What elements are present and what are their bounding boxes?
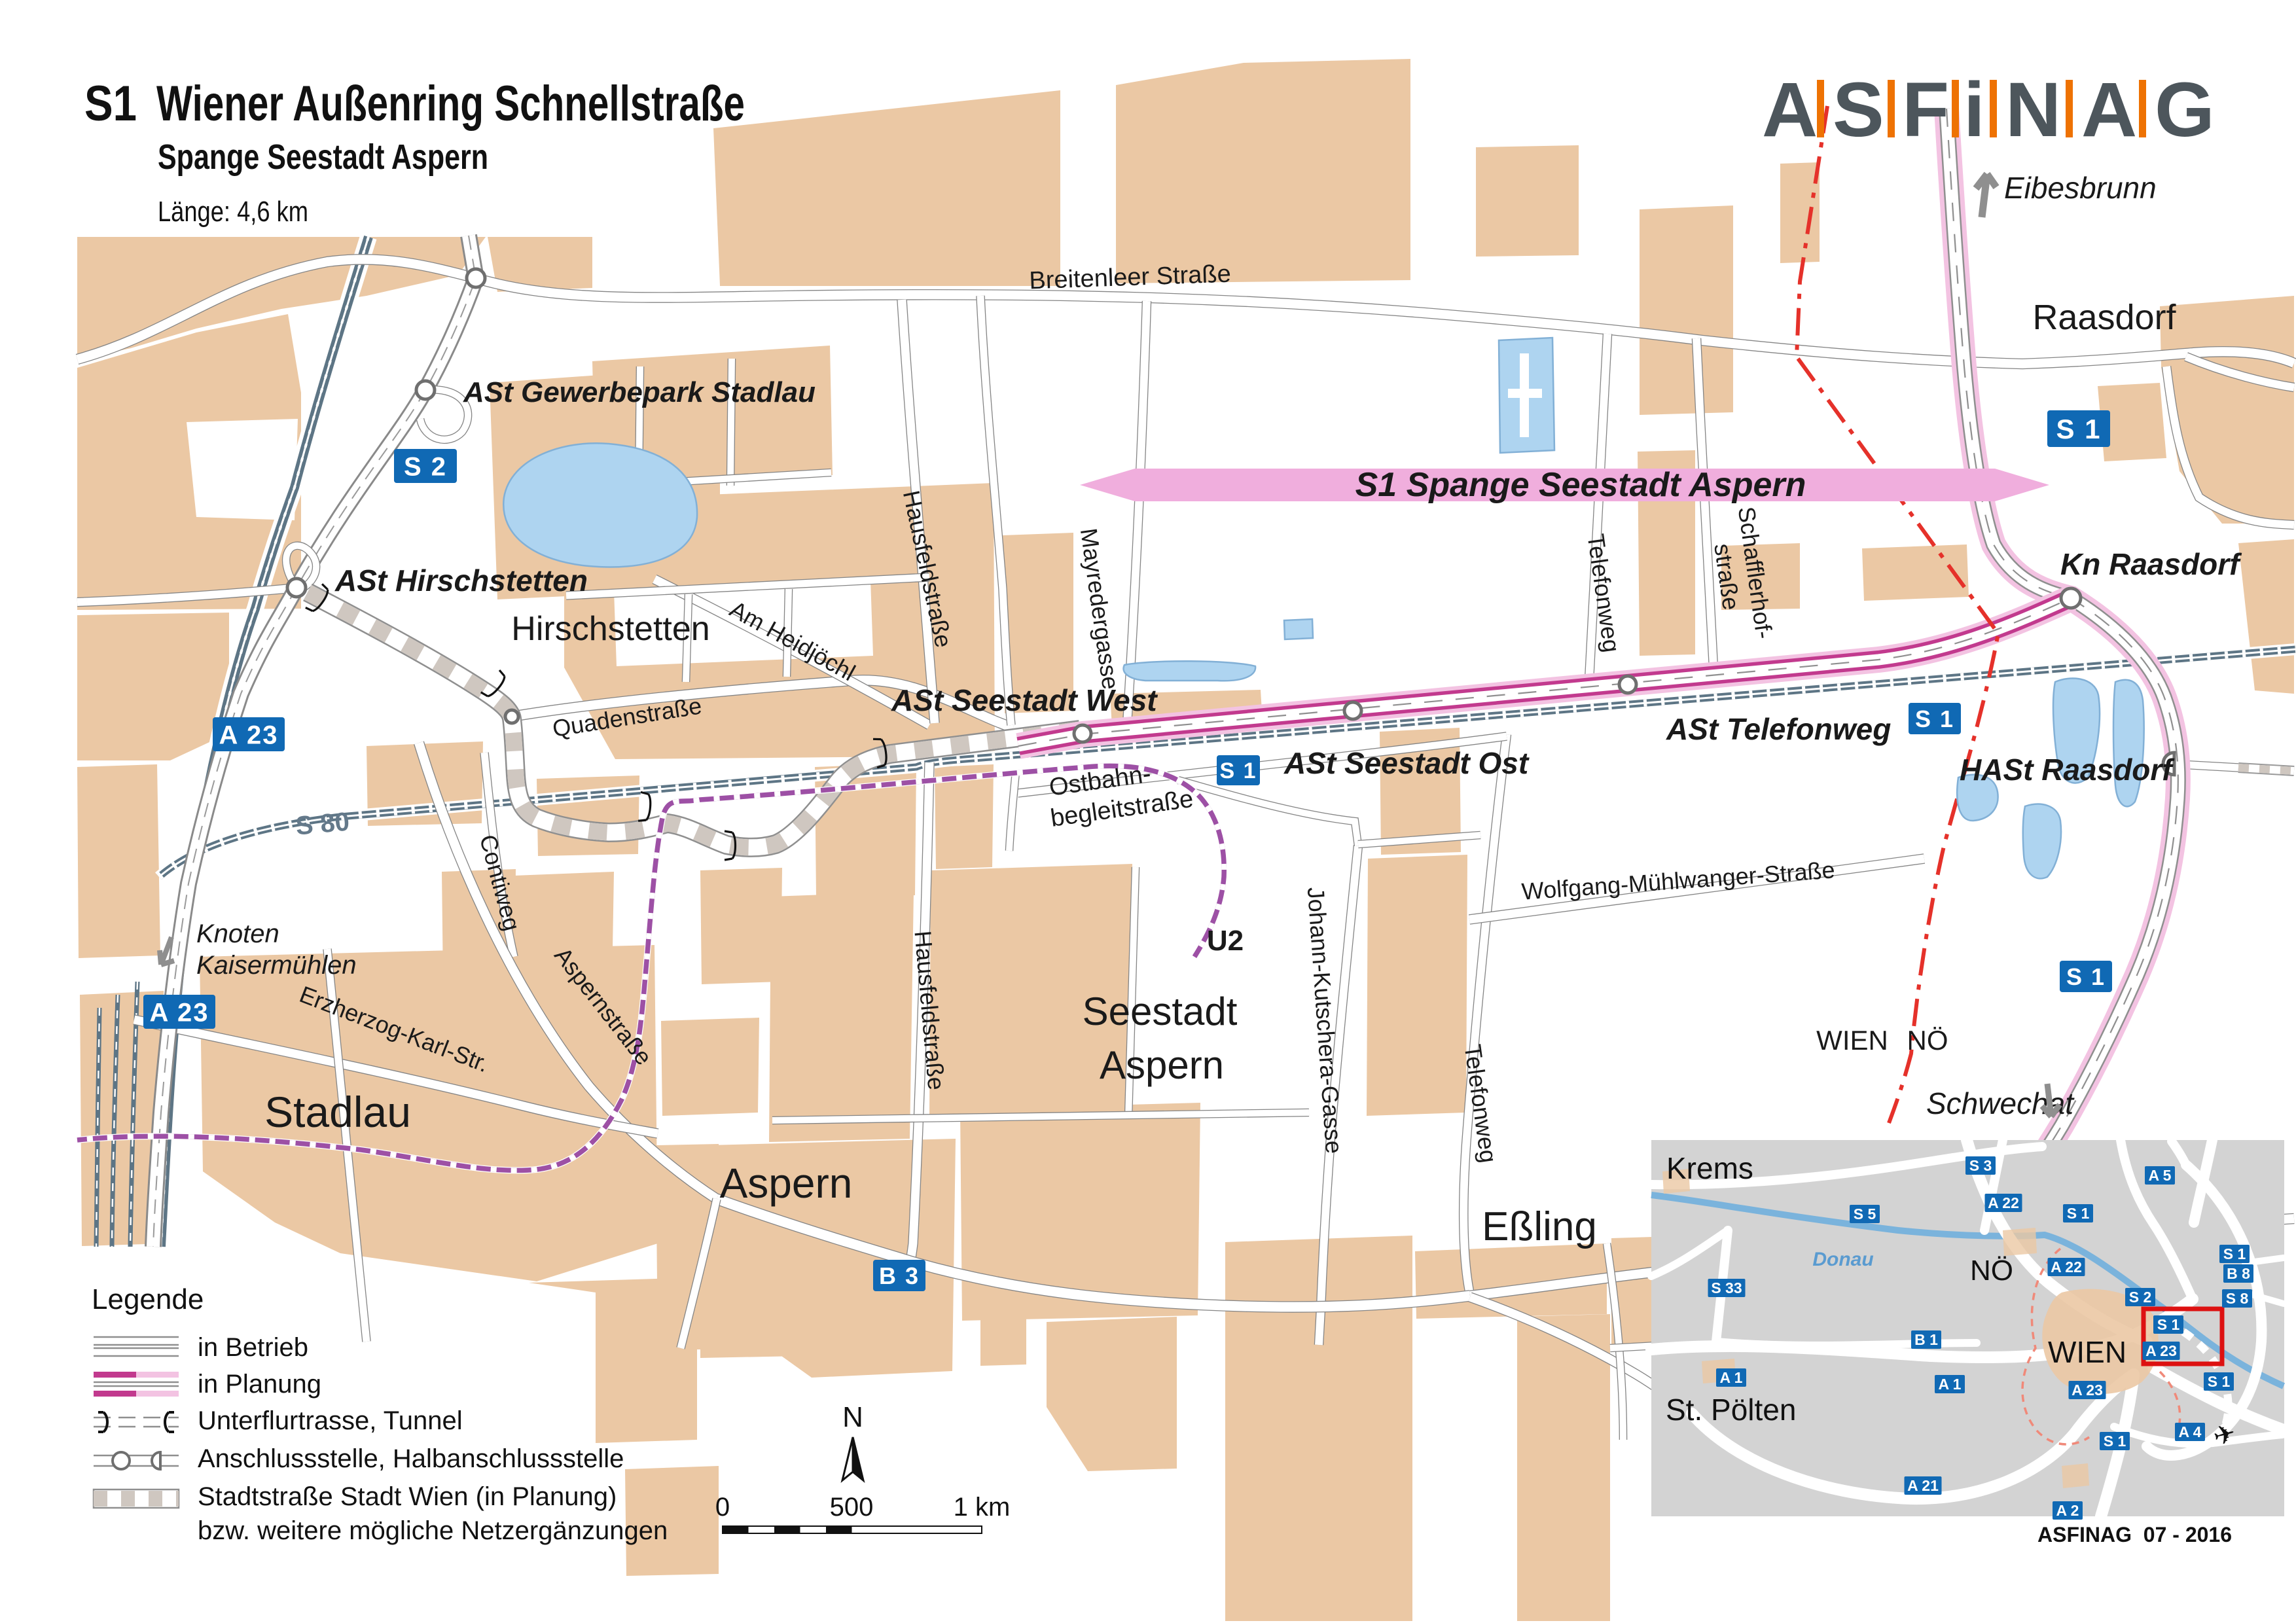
svg-text:WIEN: WIEN — [1816, 1025, 1888, 1056]
svg-text:N: N — [2005, 67, 2061, 153]
svg-text:S 3: S 3 — [1969, 1157, 1992, 1174]
svg-text:St. Pölten: St. Pölten — [1666, 1393, 1796, 1427]
svg-text:NÖ: NÖ — [1907, 1025, 1948, 1056]
svg-text:U2: U2 — [1207, 925, 1244, 957]
svg-text:Aspern: Aspern — [1100, 1043, 1224, 1087]
svg-text:Wiener Außenring Schnellstraße: Wiener Außenring Schnellstraße — [156, 76, 745, 132]
svg-text:B 1: B 1 — [1914, 1331, 1938, 1348]
svg-text:G: G — [2155, 67, 2215, 153]
svg-text:S 2: S 2 — [404, 452, 447, 481]
svg-text:S 1: S 1 — [2104, 1433, 2126, 1450]
svg-text:in Planung: in Planung — [198, 1370, 321, 1399]
svg-text:Eßling: Eßling — [1482, 1204, 1597, 1249]
svg-text:A 23: A 23 — [2072, 1382, 2103, 1399]
svg-text:S: S — [1833, 67, 1884, 153]
svg-text:HASt Raasdorf: HASt Raasdorf — [1960, 753, 2175, 787]
svg-text:B 8: B 8 — [2227, 1265, 2250, 1282]
svg-text:A 1: A 1 — [1720, 1369, 1743, 1386]
svg-text:in Betrieb: in Betrieb — [198, 1333, 308, 1362]
svg-text:NÖ: NÖ — [1970, 1255, 2013, 1287]
svg-text:A 2: A 2 — [2056, 1502, 2079, 1519]
svg-text:S 33: S 33 — [1711, 1279, 1742, 1296]
svg-text:Kn Raasdorf: Kn Raasdorf — [2060, 547, 2242, 581]
svg-text:S1: S1 — [84, 76, 137, 132]
svg-text:A: A — [2081, 67, 2137, 153]
svg-text:Raasdorf: Raasdorf — [2032, 298, 2176, 337]
svg-text:Unterflurtrasse, Tunnel: Unterflurtrasse, Tunnel — [198, 1406, 463, 1435]
svg-text:S 1: S 1 — [2157, 1316, 2180, 1333]
svg-text:ASt Seestadt West: ASt Seestadt West — [891, 683, 1158, 717]
svg-text:F: F — [1902, 67, 1949, 153]
svg-text:Länge: 4,6 km: Länge: 4,6 km — [158, 196, 308, 228]
svg-text:A 5: A 5 — [2149, 1167, 2172, 1184]
svg-text:ASt Gewerbepark Stadlau: ASt Gewerbepark Stadlau — [463, 376, 816, 408]
svg-text:Knoten: Knoten — [196, 919, 279, 948]
svg-text:500: 500 — [830, 1493, 874, 1522]
svg-text:Donau: Donau — [1812, 1249, 1873, 1270]
svg-text:A 22: A 22 — [2051, 1258, 2082, 1275]
svg-text:A 22: A 22 — [1988, 1194, 2019, 1211]
svg-text:Krems: Krems — [1666, 1151, 1753, 1185]
svg-text:Stadlau: Stadlau — [264, 1088, 411, 1136]
svg-text:0: 0 — [715, 1493, 730, 1522]
svg-text:S 1: S 1 — [2208, 1373, 2231, 1390]
svg-text:A: A — [1762, 67, 1818, 153]
svg-text:S 2: S 2 — [2129, 1289, 2152, 1306]
svg-text:Seestadt: Seestadt — [1083, 990, 1238, 1033]
svg-text:S 1: S 1 — [2066, 963, 2106, 990]
svg-text:S1 Spange Seestadt Aspern: S1 Spange Seestadt Aspern — [1355, 466, 1806, 504]
svg-text:ASt Hirschstetten: ASt Hirschstetten — [334, 563, 588, 597]
svg-text:Hirschstetten: Hirschstetten — [511, 610, 709, 648]
svg-text:Spange Seestadt Aspern: Spange Seestadt Aspern — [158, 137, 488, 177]
svg-text:ASFINAG 07 - 2016: ASFINAG 07 - 2016 — [2037, 1523, 2232, 1546]
svg-text:Anschlussstelle, Halbanschluss: Anschlussstelle, Halbanschlussstelle — [198, 1444, 624, 1473]
svg-text:A 21: A 21 — [1907, 1477, 1939, 1494]
svg-text:B 3: B 3 — [879, 1262, 920, 1289]
svg-text:Eibesbrunn: Eibesbrunn — [2004, 171, 2157, 205]
svg-text:S 1: S 1 — [1219, 758, 1257, 783]
svg-text:Legende: Legende — [92, 1283, 204, 1315]
svg-text:WIEN: WIEN — [2048, 1335, 2126, 1369]
svg-text:S 8: S 8 — [2226, 1290, 2249, 1307]
svg-text:A 23: A 23 — [2145, 1342, 2177, 1359]
svg-text:ASt Telefonweg: ASt Telefonweg — [1666, 712, 1891, 746]
svg-text:A 23: A 23 — [219, 721, 278, 749]
svg-text:A 1: A 1 — [1939, 1376, 1962, 1393]
svg-text:1 km: 1 km — [954, 1493, 1011, 1522]
svg-text:Stadtstraße Stadt Wien (in Pla: Stadtstraße Stadt Wien (in Planung) — [198, 1482, 617, 1511]
svg-text:i: i — [1964, 67, 1985, 153]
svg-text:S 5: S 5 — [1854, 1205, 1876, 1222]
svg-text:N: N — [842, 1401, 863, 1433]
svg-text:S 80: S 80 — [295, 808, 351, 841]
svg-text:A 23: A 23 — [149, 998, 209, 1027]
svg-text:ASt Seestadt Ost: ASt Seestadt Ost — [1283, 746, 1530, 780]
svg-text:Aspern: Aspern — [720, 1160, 853, 1207]
svg-text:A 4: A 4 — [2179, 1423, 2202, 1440]
svg-text:S 1: S 1 — [1915, 705, 1954, 732]
svg-text:bzw. weitere mögliche Netzergä: bzw. weitere mögliche Netzergänzungen — [198, 1516, 668, 1545]
svg-text:S 1: S 1 — [2067, 1205, 2090, 1222]
svg-text:S 1: S 1 — [2223, 1245, 2246, 1262]
svg-text:S 1: S 1 — [2056, 414, 2101, 444]
svg-text:Kaisermühlen: Kaisermühlen — [196, 951, 357, 980]
